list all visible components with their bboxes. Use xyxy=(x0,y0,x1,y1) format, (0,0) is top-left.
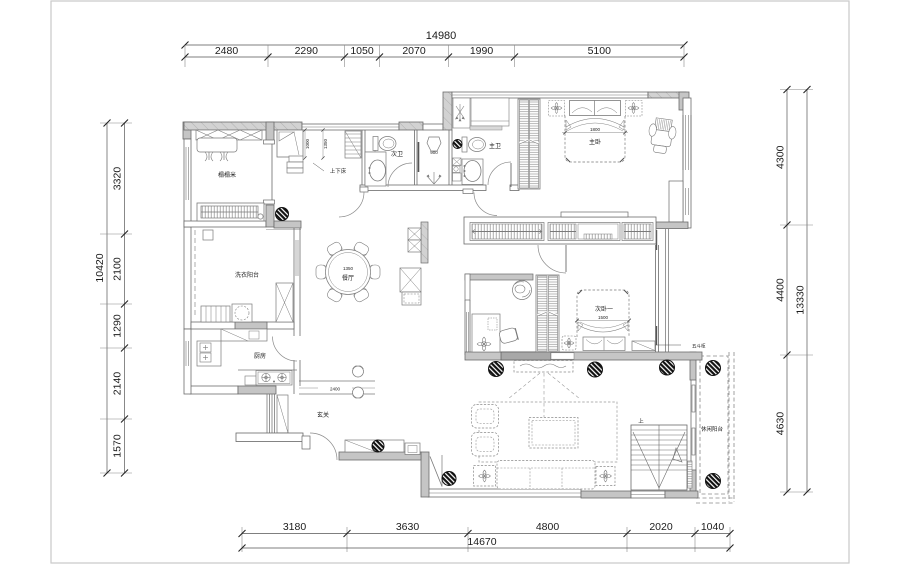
svg-text:5100: 5100 xyxy=(588,45,612,57)
svg-text:餐厅: 餐厅 xyxy=(342,274,354,282)
svg-text:1040: 1040 xyxy=(701,521,725,533)
svg-text:五斗柜: 五斗柜 xyxy=(692,343,706,350)
svg-text:2480: 2480 xyxy=(215,45,239,57)
svg-text:2020: 2020 xyxy=(649,521,673,533)
svg-text:2100: 2100 xyxy=(112,257,124,281)
svg-text:主卧: 主卧 xyxy=(589,138,601,146)
svg-text:次卧一: 次卧一 xyxy=(595,305,613,313)
svg-text:榻榻米: 榻榻米 xyxy=(218,171,236,179)
svg-text:1000: 1000 xyxy=(305,138,310,149)
svg-text:1050: 1050 xyxy=(350,45,374,57)
svg-text:10420: 10420 xyxy=(94,253,106,282)
svg-text:1350: 1350 xyxy=(343,266,354,271)
svg-text:2140: 2140 xyxy=(112,372,124,396)
svg-text:900: 900 xyxy=(430,150,438,155)
svg-text:14980: 14980 xyxy=(426,30,457,42)
svg-text:1990: 1990 xyxy=(470,45,494,57)
svg-text:3320: 3320 xyxy=(112,167,124,191)
svg-text:主卫: 主卫 xyxy=(489,142,501,150)
svg-text:洗衣阳台: 洗衣阳台 xyxy=(235,271,259,279)
svg-text:上下床: 上下床 xyxy=(330,167,347,175)
svg-text:3630: 3630 xyxy=(396,521,420,533)
svg-text:4400: 4400 xyxy=(775,278,787,302)
svg-text:厨房: 厨房 xyxy=(254,352,266,360)
svg-text:1570: 1570 xyxy=(112,434,124,458)
svg-text:14670: 14670 xyxy=(467,536,496,548)
svg-text:次卫: 次卫 xyxy=(391,150,403,158)
svg-text:4800: 4800 xyxy=(536,521,560,533)
svg-text:2070: 2070 xyxy=(402,45,426,57)
svg-text:2400: 2400 xyxy=(330,387,341,392)
svg-text:1290: 1290 xyxy=(112,314,124,338)
svg-text:3180: 3180 xyxy=(283,521,307,533)
svg-text:2290: 2290 xyxy=(295,45,319,57)
svg-text:1500: 1500 xyxy=(598,315,609,320)
svg-text:上: 上 xyxy=(638,417,644,425)
svg-text:休闲阳台: 休闲阳台 xyxy=(701,425,724,433)
svg-text:13330: 13330 xyxy=(795,285,807,314)
svg-text:4300: 4300 xyxy=(775,145,787,169)
svg-text:1350: 1350 xyxy=(323,138,328,149)
svg-text:1800: 1800 xyxy=(590,127,601,132)
svg-text:4630: 4630 xyxy=(775,412,787,436)
svg-text:玄关: 玄关 xyxy=(317,411,329,419)
